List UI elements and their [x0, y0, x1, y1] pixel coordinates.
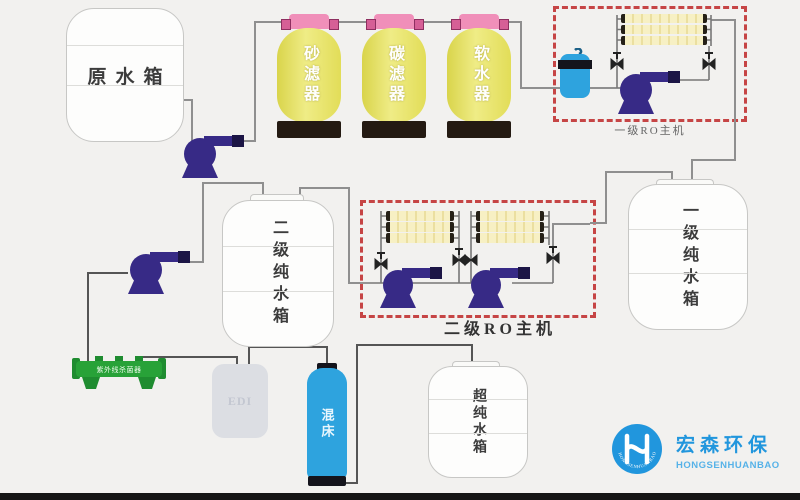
filter-base	[277, 121, 341, 138]
raw-water-pump	[180, 132, 244, 180]
membrane-tube	[621, 14, 707, 23]
filter-valve-tab	[281, 19, 291, 30]
filter-valve-tab	[366, 19, 376, 30]
tank-level-line	[67, 85, 183, 86]
ro2-pump-2	[466, 264, 530, 310]
pipe-pump2-to-uv	[88, 273, 128, 362]
pump-icon	[466, 264, 530, 310]
uv-sterilizer: 紫外线杀菌器	[70, 354, 170, 394]
tank-level-line	[629, 273, 747, 274]
pure-water-pump	[126, 248, 190, 296]
process-flow-diagram: 原水箱 砂滤器 碳滤器 软水器 一级RO主机	[0, 0, 800, 500]
ro2-membrane-rack-b	[476, 211, 544, 243]
ro1-membrane-rack	[621, 14, 707, 45]
membrane-tube	[386, 222, 454, 232]
membrane-tube	[621, 36, 707, 45]
mixed-bed-column: 混床	[307, 368, 347, 480]
filter-valve-tab	[451, 19, 461, 30]
uv-sterilizer-icon: 紫外线杀菌器	[70, 354, 170, 394]
softener-filter-label: 软水器	[467, 45, 491, 105]
filter-cap	[289, 14, 329, 29]
ro1-pump	[616, 68, 680, 116]
tank-level-line	[67, 45, 183, 46]
logo-name-en: HONGSENHUANBAO	[676, 460, 790, 471]
ro1-label: 一级RO主机	[575, 122, 725, 138]
ro2-membrane-rack-a	[386, 211, 454, 243]
membrane-tube	[476, 222, 544, 232]
membrane-tube	[476, 233, 544, 243]
membrane-tube	[386, 233, 454, 243]
tank-level-line	[429, 433, 527, 434]
softener-filter: 软水器	[447, 28, 511, 122]
carbon-filter: 碳滤器	[362, 28, 426, 122]
membrane-tube	[386, 211, 454, 221]
pump-icon	[616, 68, 680, 116]
filter-valve-tab	[414, 19, 424, 30]
tank-level-line	[629, 229, 747, 230]
mixed-bed-base	[308, 476, 346, 486]
bottom-bar	[0, 493, 800, 500]
ro2-pump-1	[378, 264, 442, 310]
stage2-pure-tank: 二级纯水箱	[222, 200, 334, 347]
company-logo: HONGSENHUANBAO 宏森环保 HONGSENHUANBAO	[610, 422, 790, 480]
stage1-pure-tank: 一级纯水箱	[628, 184, 748, 330]
ro2-label: 二级RO主机	[420, 315, 580, 339]
sand-filter: 砂滤器	[277, 28, 341, 122]
precision-filter-icon	[558, 48, 592, 100]
filter-valve-tab	[499, 19, 509, 30]
carbon-filter-label: 碳滤器	[382, 45, 406, 105]
stage2-pure-tank-label: 二级纯水箱	[266, 219, 290, 329]
pump-icon	[126, 248, 190, 296]
tank-level-line	[429, 399, 527, 400]
sand-filter-label: 砂滤器	[297, 45, 321, 105]
filter-base	[447, 121, 511, 138]
edi-label: EDI	[228, 394, 252, 409]
filter-cap	[374, 14, 414, 29]
ultra-pure-tank: 超纯水箱	[428, 366, 528, 478]
filter-valve-tab	[329, 19, 339, 30]
edi-module: EDI	[212, 364, 268, 438]
raw-water-tank: 原水箱	[66, 8, 184, 142]
filter-base	[362, 121, 426, 138]
pump-icon	[180, 132, 244, 180]
tank-level-line	[223, 291, 333, 292]
uv-sterilizer-label: 紫外线杀菌器	[97, 365, 142, 374]
tank-level-line	[223, 246, 333, 247]
mixed-bed-label: 混床	[318, 408, 337, 440]
pump-icon	[378, 264, 442, 310]
membrane-tube	[476, 211, 544, 221]
stage1-pure-tank-label: 一级纯水箱	[676, 202, 700, 312]
logo-name-cn: 宏森环保	[676, 430, 790, 457]
membrane-tube	[621, 25, 707, 34]
precision-filter	[558, 48, 592, 100]
filter-cap	[459, 14, 499, 29]
